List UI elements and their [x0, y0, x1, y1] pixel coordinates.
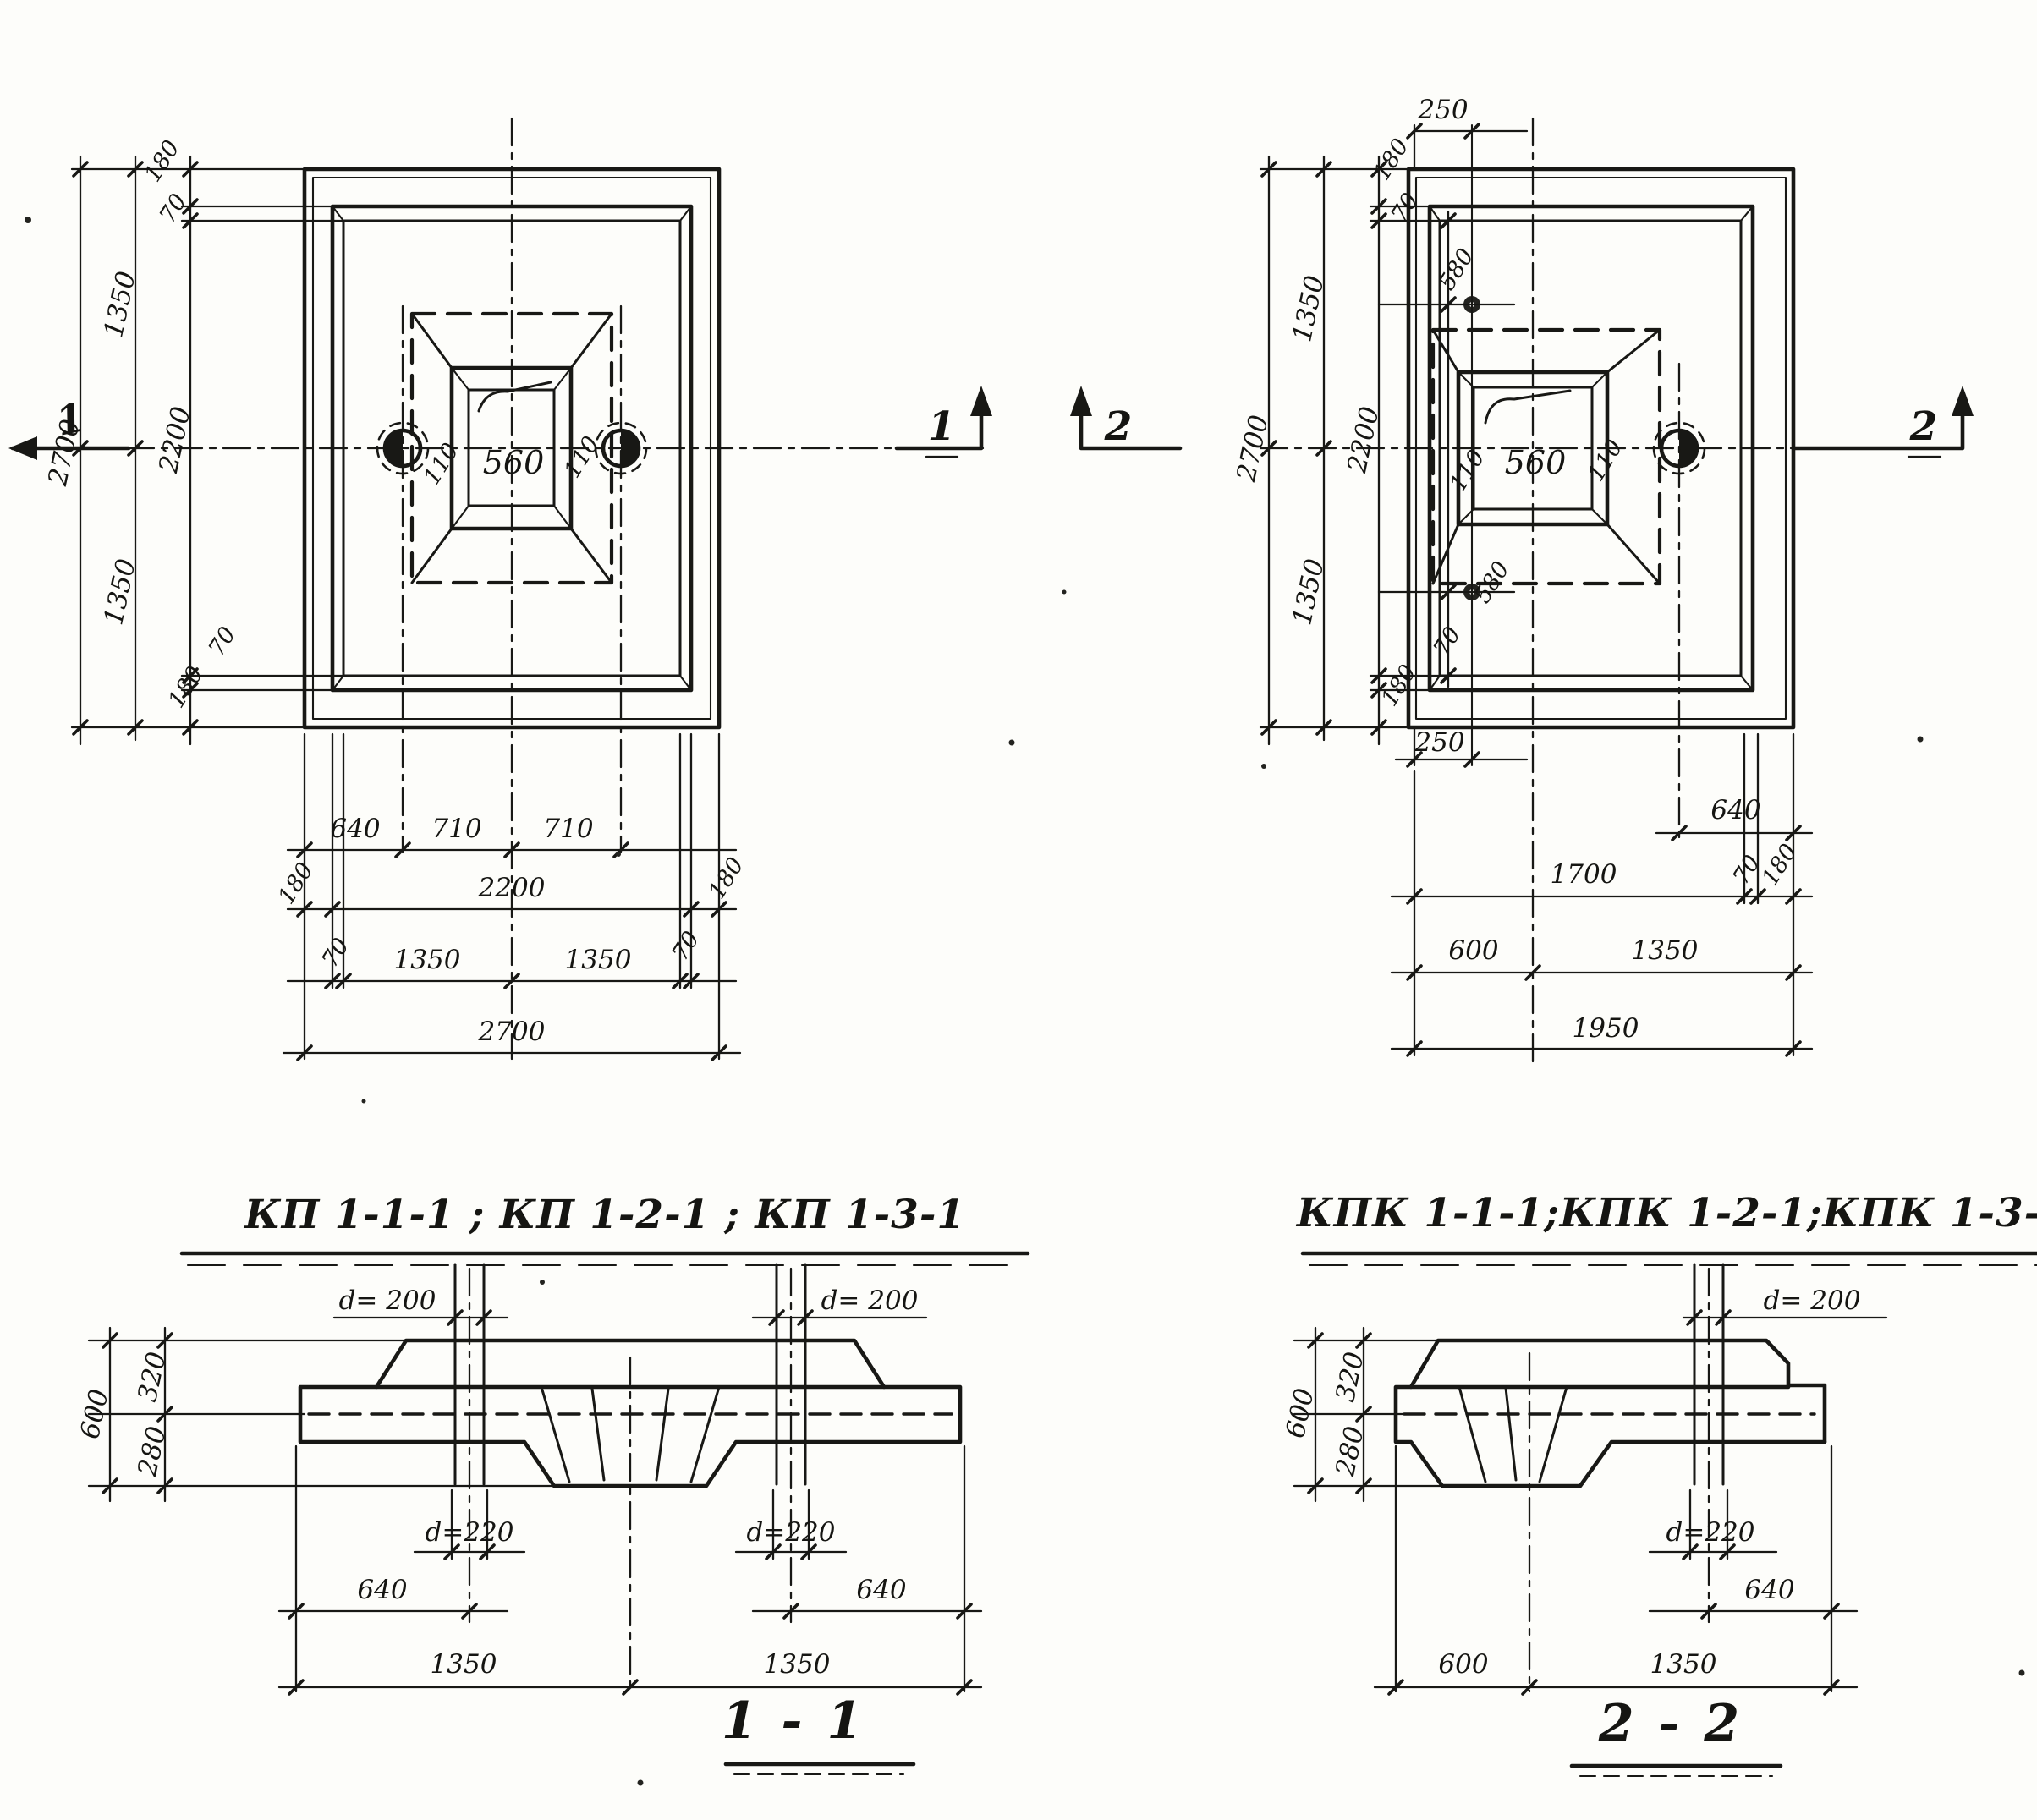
- dim-560: 560: [483, 444, 545, 481]
- dim-110-right-r: 110: [1583, 436, 1628, 486]
- left-plan-socket-scribble: [479, 382, 551, 411]
- dim-250-top: 250: [1417, 95, 1468, 125]
- dim-70-top: 70: [155, 189, 192, 228]
- dim-560-r: 560: [1505, 444, 1567, 481]
- s1-1350-right: 1350: [764, 1649, 831, 1680]
- s1-640-left: 640: [357, 1575, 407, 1605]
- dim-110-left: 110: [419, 439, 464, 490]
- s1-title: 1 - 1: [722, 1691, 865, 1751]
- s1-1350-left: 1350: [431, 1649, 497, 1680]
- s2-title: 2 - 2: [1598, 1694, 1743, 1753]
- dim-70-row-l: 70: [317, 934, 354, 973]
- s2-flange: [1396, 1387, 1825, 1486]
- dim-2700-row: 2700: [478, 1017, 546, 1047]
- dim-1350-row-r: 1350: [565, 945, 632, 975]
- s2-640: 640: [1744, 1575, 1794, 1605]
- s2-1350-bottom: 1350: [1650, 1649, 1717, 1680]
- dim-180-bot: 180: [163, 662, 209, 713]
- dim-110-left-r: 110: [1445, 446, 1491, 496]
- dim-640-r: 640: [1710, 795, 1760, 825]
- s1-d200-left: d= 200: [339, 1286, 436, 1316]
- s1-280: 280: [132, 1423, 173, 1479]
- marker1-left-arrow: [8, 436, 37, 460]
- s2-600: 600: [1280, 1385, 1320, 1440]
- dim-580-bot-r: 580: [1469, 557, 1515, 608]
- dim-640: 640: [330, 814, 380, 844]
- marker2-right-label: 2: [1909, 403, 1938, 450]
- s2-socket-slants: [1459, 1387, 1567, 1482]
- titles: КП 1-1-1 ; КП 1-2-1 ; КП 1-3-1 КПК 1-1-1…: [182, 1190, 2037, 1265]
- dim-row-extensions-r: [1414, 734, 1793, 1055]
- dim-250-bottom: 250: [1414, 727, 1464, 758]
- dim-70-row-r: 70: [667, 927, 705, 966]
- marker2-left-label: 2: [1104, 403, 1133, 450]
- dim-1950-row: 1950: [1573, 1013, 1639, 1044]
- dim-1700: 1700: [1551, 859, 1617, 890]
- blueprint-sheet: 110 560 110 2700 1350 1350 2200 180 70 7…: [0, 0, 2037, 1820]
- dim-1350-row-l: 1350: [394, 945, 461, 975]
- s2-d220: d=220: [1666, 1517, 1755, 1548]
- foundation-drawing: 110 560 110 2700 1350 1350 2200 180 70 7…: [0, 0, 2037, 1820]
- dim-70-bot: 70: [204, 622, 241, 661]
- s1-d220-right: d=220: [747, 1517, 836, 1548]
- marker1-right-label: 1: [928, 403, 956, 450]
- s1-d200-right: d= 200: [821, 1286, 919, 1316]
- left-plan-view: 110 560 110: [127, 118, 983, 1059]
- dim-70-bot-r: 70: [1429, 622, 1466, 661]
- marker2-right-arrow: [1952, 386, 1974, 416]
- dim-180-bot-r: 180: [1376, 661, 1422, 711]
- right-plan-view: 110 560 110: [1260, 118, 1964, 1061]
- dim-70-row-r2: 70: [1728, 851, 1765, 890]
- s1-axes: [469, 1269, 791, 1691]
- s1-320: 320: [132, 1349, 173, 1404]
- s2-600-bottom: 600: [1438, 1649, 1488, 1680]
- right-title: КПК 1-1-1;КПК 1-2-1;КПК 1-3-1: [1295, 1190, 2037, 1236]
- right-plan-bottom-dims: 640 1700 70 180 600 1350 1950: [1392, 734, 1812, 1055]
- marker2-left-arrow: [1070, 386, 1092, 416]
- s1-640-right: 640: [856, 1575, 906, 1605]
- marker1-right-arrow: [970, 386, 992, 416]
- dim-710-l: 710: [431, 814, 481, 844]
- dim-180-row-r: 180: [704, 853, 749, 904]
- left-title: КП 1-1-1 ; КП 1-2-1 ; КП 1-3-1: [243, 1192, 965, 1238]
- dim-180-top: 180: [140, 136, 185, 187]
- s1-600: 600: [74, 1386, 115, 1441]
- dim-600-row: 600: [1448, 935, 1498, 966]
- s2-d200: d= 200: [1764, 1286, 1861, 1316]
- s2-top-profile: [1411, 1340, 1825, 1442]
- s1-d220-left: d=220: [426, 1517, 514, 1548]
- section-2-2: d= 200 d=220 600 320 280 640 600 1350 2 …: [1280, 1264, 1886, 1776]
- dim-2200-row: 2200: [478, 873, 546, 903]
- right-plan-socket-scribble: [1485, 391, 1570, 423]
- dim-1350-row: 1350: [1632, 935, 1699, 966]
- dim-180-row-r2: 180: [1757, 840, 1803, 891]
- scan-specks: [25, 217, 2025, 1786]
- section-1-1: d= 200 d= 200 d=220 d=220 600 320 280 64…: [74, 1264, 981, 1774]
- s2-axes: [1529, 1269, 1709, 1691]
- dim-710-r: 710: [543, 814, 593, 844]
